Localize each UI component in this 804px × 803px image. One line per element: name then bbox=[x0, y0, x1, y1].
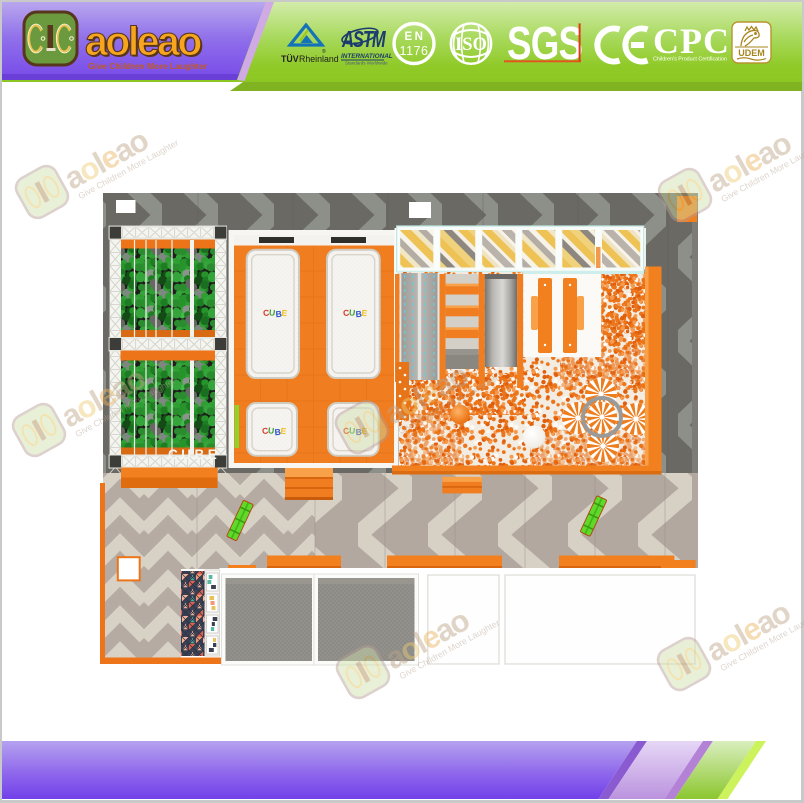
svg-text:CUBE: CUBE bbox=[168, 447, 220, 462]
